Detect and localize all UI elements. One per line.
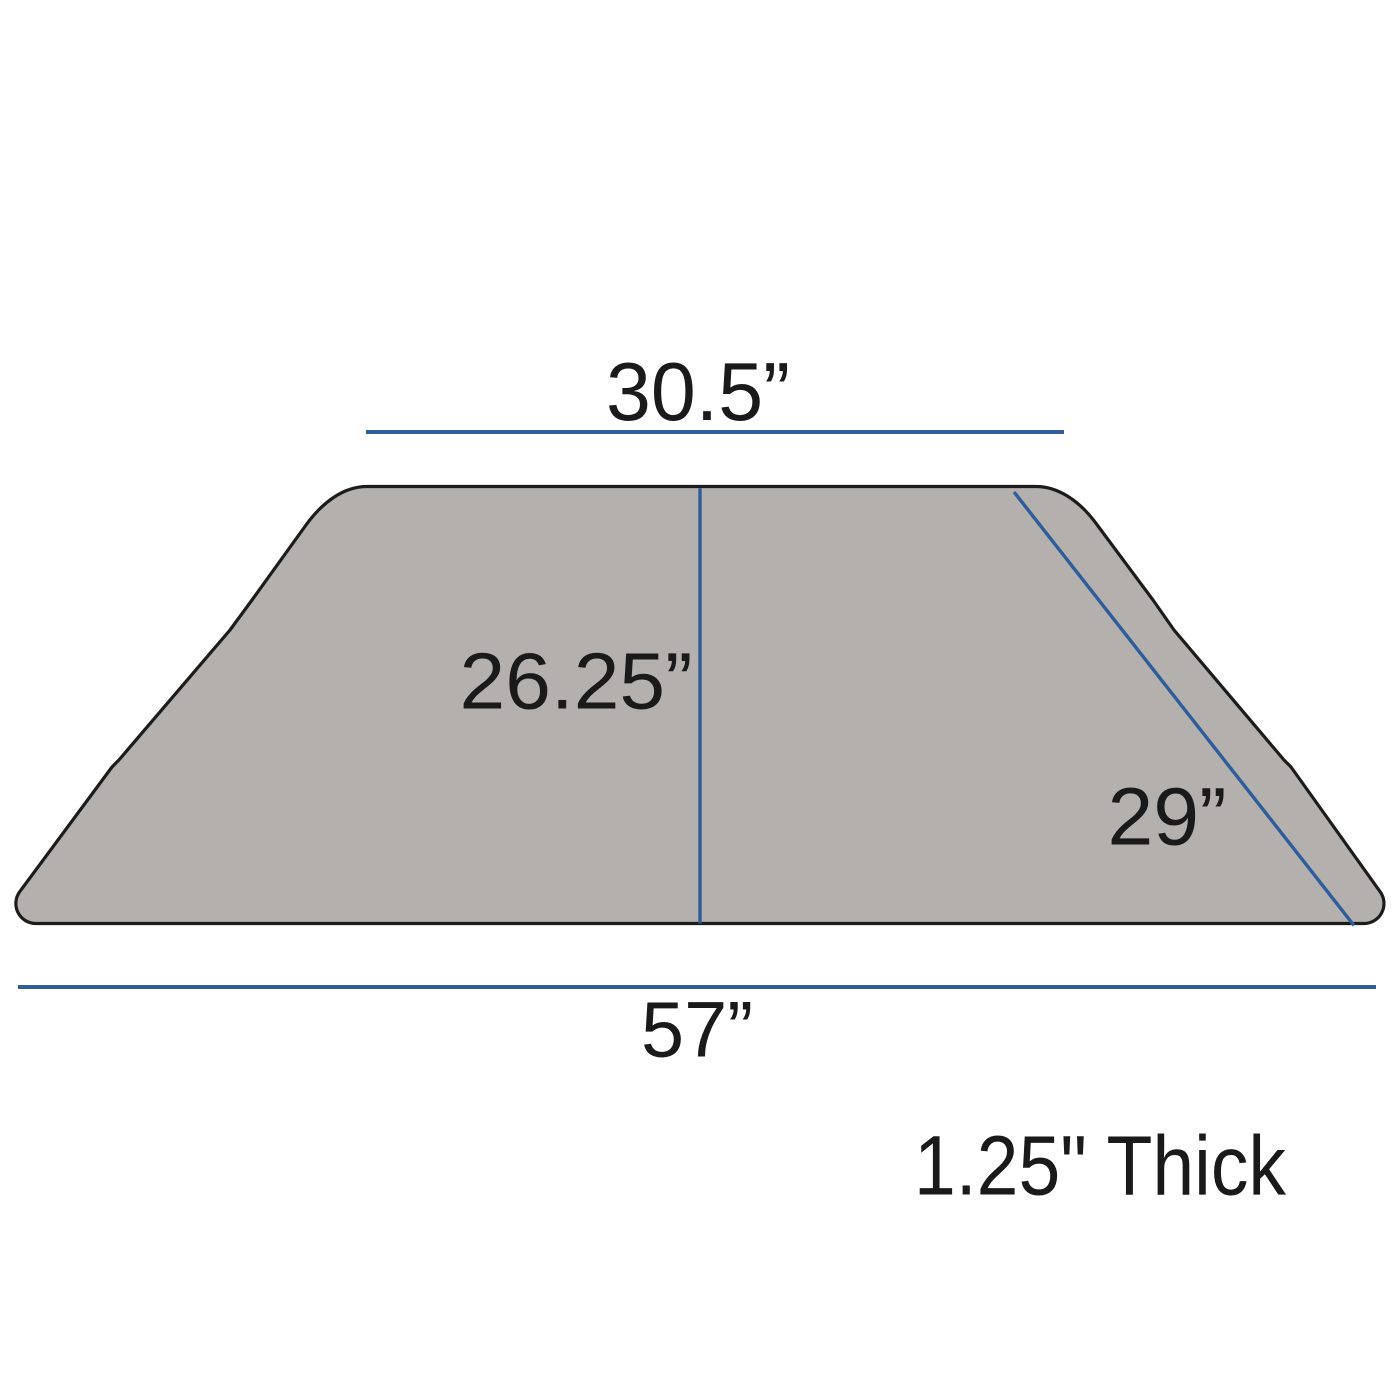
svg-text:1.25" Thick: 1.25" Thick — [914, 1119, 1287, 1213]
svg-text:57”: 57” — [641, 985, 753, 1074]
svg-text:26.25”: 26.25” — [460, 637, 693, 726]
svg-text:30.5”: 30.5” — [606, 345, 790, 438]
svg-text:29”: 29” — [1108, 772, 1227, 863]
